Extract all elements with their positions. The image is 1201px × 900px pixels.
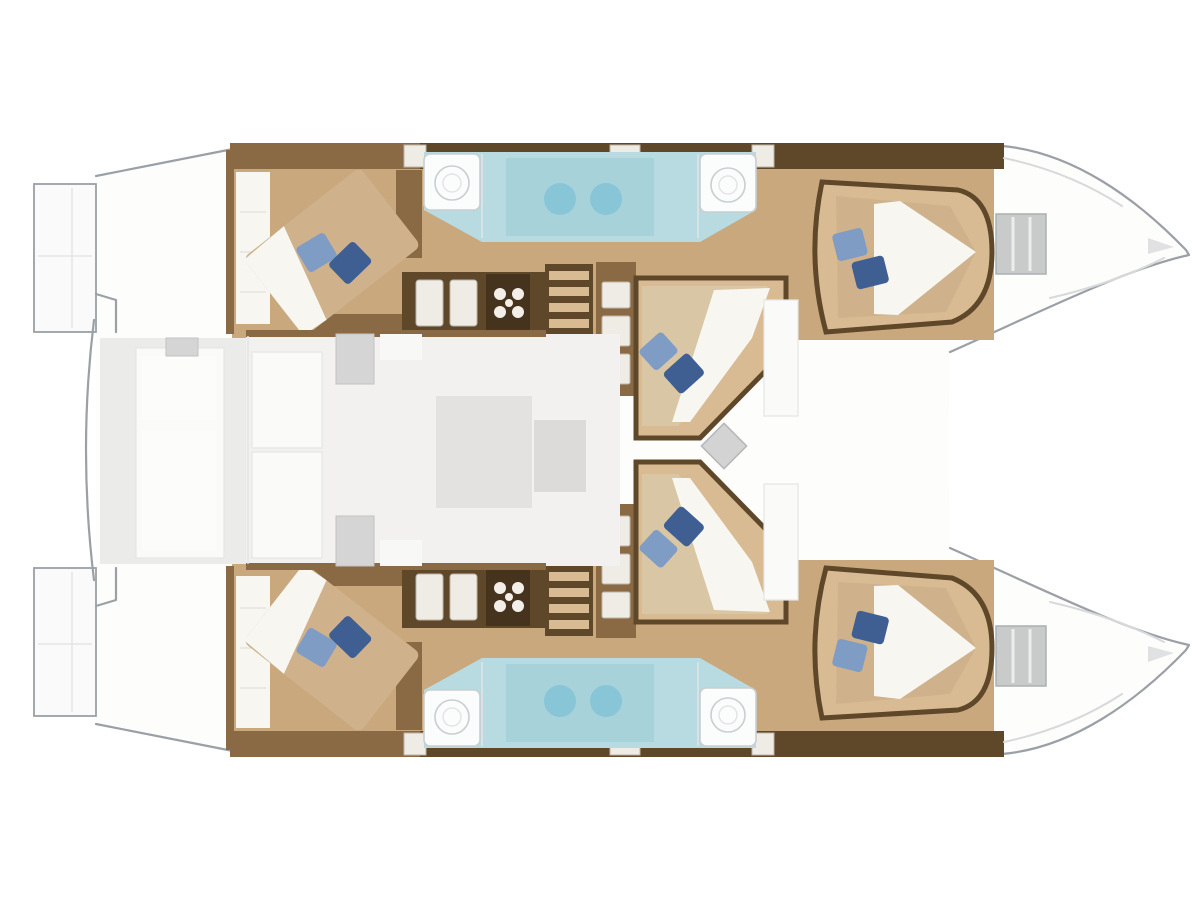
cockpit-seat	[142, 430, 216, 550]
stair-step	[549, 319, 589, 328]
stair-step	[549, 271, 589, 280]
cockpit-console	[166, 338, 198, 356]
shower-glow-icon	[544, 183, 576, 215]
galley-sink	[450, 280, 477, 326]
galley-sink	[416, 280, 443, 326]
salon-table	[436, 396, 532, 508]
salon-step	[380, 540, 422, 566]
nav-console	[336, 334, 374, 384]
cockpit-aft-arc	[86, 320, 94, 580]
shower-glow-icon	[590, 183, 622, 215]
boat-floor-plan-image	[0, 0, 1201, 900]
mid-cabin-entry	[764, 300, 798, 416]
catamaran-plan-svg	[0, 0, 1201, 900]
cabinet-front	[602, 282, 630, 308]
salon-step	[380, 334, 422, 360]
hull-side-cabinet-band	[230, 143, 420, 169]
bow-deck-hatch	[996, 214, 1046, 274]
galley-island	[252, 452, 322, 558]
forward-cabin	[815, 182, 992, 332]
swim-platform	[34, 184, 96, 332]
stair-step	[549, 303, 589, 312]
galley-island	[252, 352, 322, 448]
stair-step	[549, 287, 589, 296]
nav-console	[336, 516, 374, 566]
cockpit-bench	[136, 338, 224, 558]
bathroom-counter-zone	[424, 152, 756, 242]
aft-cabin-aft-wall	[226, 150, 234, 334]
door-gap	[404, 145, 426, 167]
cockpit-table	[142, 356, 216, 420]
salon-seat	[534, 420, 586, 492]
shower-counter-deep	[506, 158, 654, 236]
vanity-basin	[435, 166, 469, 200]
vanity-basin	[711, 168, 745, 202]
